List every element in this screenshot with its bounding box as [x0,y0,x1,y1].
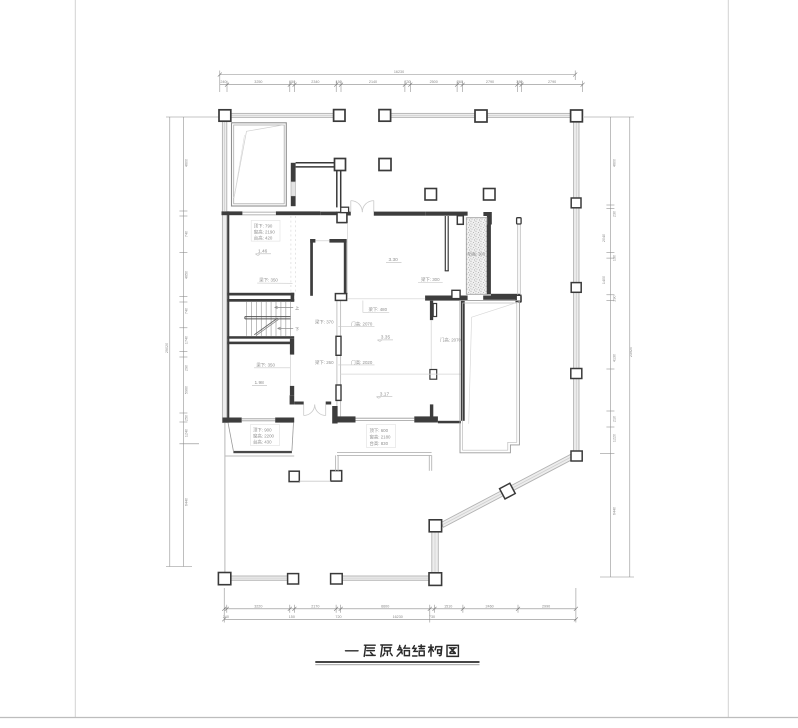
svg-text:3250: 3250 [254,80,262,84]
svg-text:240: 240 [223,615,229,619]
svg-text:4600: 4600 [613,159,617,167]
svg-text:2790: 2790 [548,80,556,84]
svg-text:740: 740 [185,231,189,237]
svg-text:150: 150 [289,80,295,84]
svg-text:730: 730 [405,80,411,84]
svg-text:3.17: 3.17 [380,391,390,397]
svg-text:1240: 1240 [185,429,189,437]
svg-text:290: 290 [613,295,617,301]
svg-text:梁下: 350: 梁下: 350 [256,361,275,368]
svg-text:2340: 2340 [311,80,319,84]
svg-text:3220: 3220 [254,604,262,608]
svg-text:6600: 6600 [381,604,389,608]
svg-text:2500: 2500 [430,80,438,84]
svg-text:阳高: 300: 阳高: 300 [468,251,486,258]
svg-text:门高: 2070: 门高: 2070 [440,337,462,344]
svg-text:230: 230 [613,211,617,217]
svg-text:130: 130 [613,255,617,261]
svg-text:梁下: 260: 梁下: 260 [315,359,334,366]
svg-text:2790: 2790 [486,80,494,84]
svg-text:16230: 16230 [394,70,404,74]
svg-text:290: 290 [185,365,189,371]
svg-text:280: 280 [516,80,522,84]
svg-text:2140: 2140 [369,80,377,84]
svg-text:2170: 2170 [311,604,319,608]
svg-text:梁下: 300: 梁下: 300 [421,276,440,283]
svg-text:250: 250 [185,415,189,421]
svg-text:4650: 4650 [185,271,189,279]
svg-text:窗高: 2180: 窗高: 2180 [370,434,392,441]
svg-text:150: 150 [336,80,342,84]
svg-text:梁下: 350: 梁下: 350 [259,277,278,284]
svg-text:720: 720 [335,615,341,619]
svg-text:150: 150 [289,615,295,619]
svg-text:5960: 5960 [185,386,189,394]
svg-text:2040: 2040 [602,234,606,242]
svg-text:台高: 420: 台高: 420 [254,234,273,241]
svg-text:1740: 1740 [185,336,189,344]
svg-text:梁下: 370: 梁下: 370 [315,319,334,326]
svg-text:4130: 4130 [613,354,617,362]
svg-text:梁下: 480: 梁下: 480 [369,306,388,313]
svg-text:台高: 830: 台高: 830 [370,440,389,447]
svg-text:740: 740 [185,308,189,314]
svg-text:6440: 6440 [613,507,617,515]
svg-text:1220: 1220 [613,434,617,442]
svg-text:上: 上 [295,304,299,310]
svg-text:1510: 1510 [444,604,452,608]
svg-text:2460: 2460 [485,604,493,608]
svg-text:6440: 6440 [185,498,189,506]
svg-text:23920: 23920 [629,347,633,357]
svg-text:260: 260 [457,80,463,84]
svg-text:1400: 1400 [602,276,606,284]
svg-text:240: 240 [220,80,226,84]
svg-text:29020: 29020 [165,343,169,353]
svg-text:730: 730 [429,615,435,619]
svg-text:台高: 430: 台高: 430 [253,438,272,445]
svg-text:2990: 2990 [542,604,550,608]
svg-text:210: 210 [613,416,617,422]
svg-text:4600: 4600 [185,159,189,167]
svg-text:16230: 16230 [393,615,403,619]
